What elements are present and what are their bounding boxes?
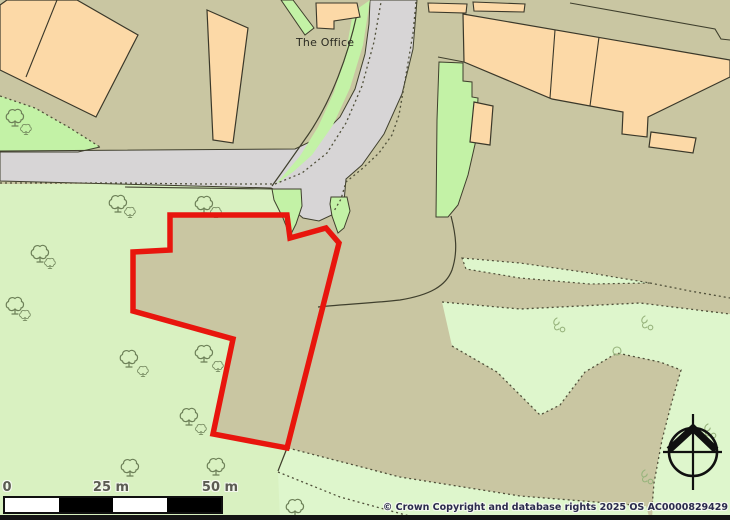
grass-tuft-icon — [642, 470, 653, 484]
building-tall-left — [207, 10, 248, 143]
scale-label-50: 50 m — [202, 480, 238, 495]
scale-bar-segment — [59, 498, 113, 512]
grass-field-right — [442, 302, 730, 520]
office-label: The Office — [296, 36, 354, 49]
map-frame-bottom — [0, 515, 730, 520]
map-canvas: The Office 0 25 m 50 m © Crown Copyright… — [0, 0, 730, 520]
strip-top-line — [438, 57, 464, 62]
plot-line-topright — [570, 3, 730, 40]
scale-bar-segment — [113, 498, 167, 512]
building-row-b — [473, 2, 525, 12]
building-small-mid — [470, 102, 493, 145]
entrance-verge-east — [330, 197, 350, 233]
scale-bar — [3, 496, 223, 514]
scale-bar-segment — [167, 498, 221, 512]
building-main-row — [463, 14, 730, 137]
scale-bar-segment — [5, 498, 59, 512]
scale-label-25: 25 m — [93, 480, 129, 495]
grass-wedge-mid — [462, 258, 650, 284]
building-row-a — [428, 3, 467, 13]
scale-label-0: 0 — [2, 480, 11, 495]
copyright-text: © Crown Copyright and database rights 20… — [383, 502, 728, 513]
office-green-strip — [281, 0, 314, 35]
dash-wedge-cont — [650, 283, 730, 298]
building-topleft — [0, 0, 138, 117]
building-small-right — [649, 132, 696, 153]
